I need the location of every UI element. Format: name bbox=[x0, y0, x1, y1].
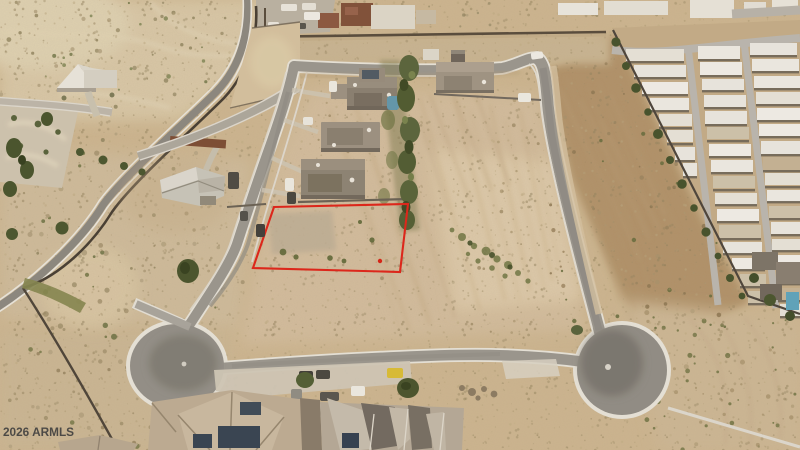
svg-text:2026 ARMLS: 2026 ARMLS bbox=[3, 425, 74, 439]
